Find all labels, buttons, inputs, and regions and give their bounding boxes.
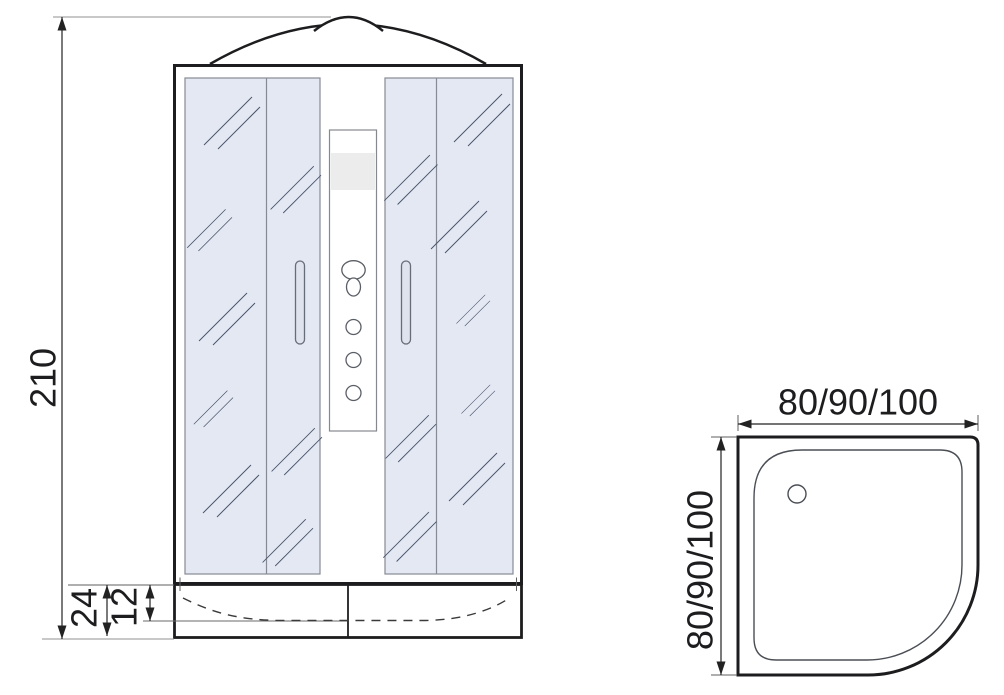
dimension-width: 80/90/100 (738, 382, 978, 432)
arrowhead-left (738, 420, 752, 429)
arrowhead-up (58, 17, 67, 31)
column-mirror-band (331, 153, 375, 190)
tray-height-dimension-label: 24 (64, 588, 105, 628)
top-view: 80/90/100 80/90/100 (680, 382, 979, 676)
roof-top-cap (314, 17, 383, 31)
door-handle-right (402, 261, 411, 344)
arrowhead-right (965, 420, 979, 429)
arrowhead-down (717, 662, 726, 676)
control-knob (346, 320, 361, 335)
drain-hole (788, 485, 806, 503)
tray-front (143, 578, 522, 638)
control-knob (346, 353, 361, 368)
shower-column (330, 130, 377, 431)
tray-basin-outline (754, 450, 962, 660)
basin-depth-dimension-label: 12 (104, 587, 145, 627)
dimension-height: 210 (23, 17, 67, 639)
front-view: 210 24 12 (23, 17, 522, 639)
arrowhead-up (146, 585, 155, 599)
shower-head-handle (347, 278, 361, 296)
depth-dimension-label: 80/90/100 (680, 490, 721, 650)
width-dimension-label: 80/90/100 (778, 382, 938, 423)
dimension-depth: 80/90/100 (680, 437, 738, 675)
shower-head (342, 261, 365, 280)
arrowhead-down (146, 608, 155, 622)
door-handle-left (296, 261, 305, 344)
drawing-canvas: 210 24 12 80/90/ (0, 0, 1004, 695)
arrowhead-up (717, 437, 726, 451)
shower-cabin-drawing: 210 24 12 80/90/ (0, 0, 1004, 695)
height-dimension-label: 210 (23, 348, 64, 408)
control-knob (346, 386, 361, 401)
